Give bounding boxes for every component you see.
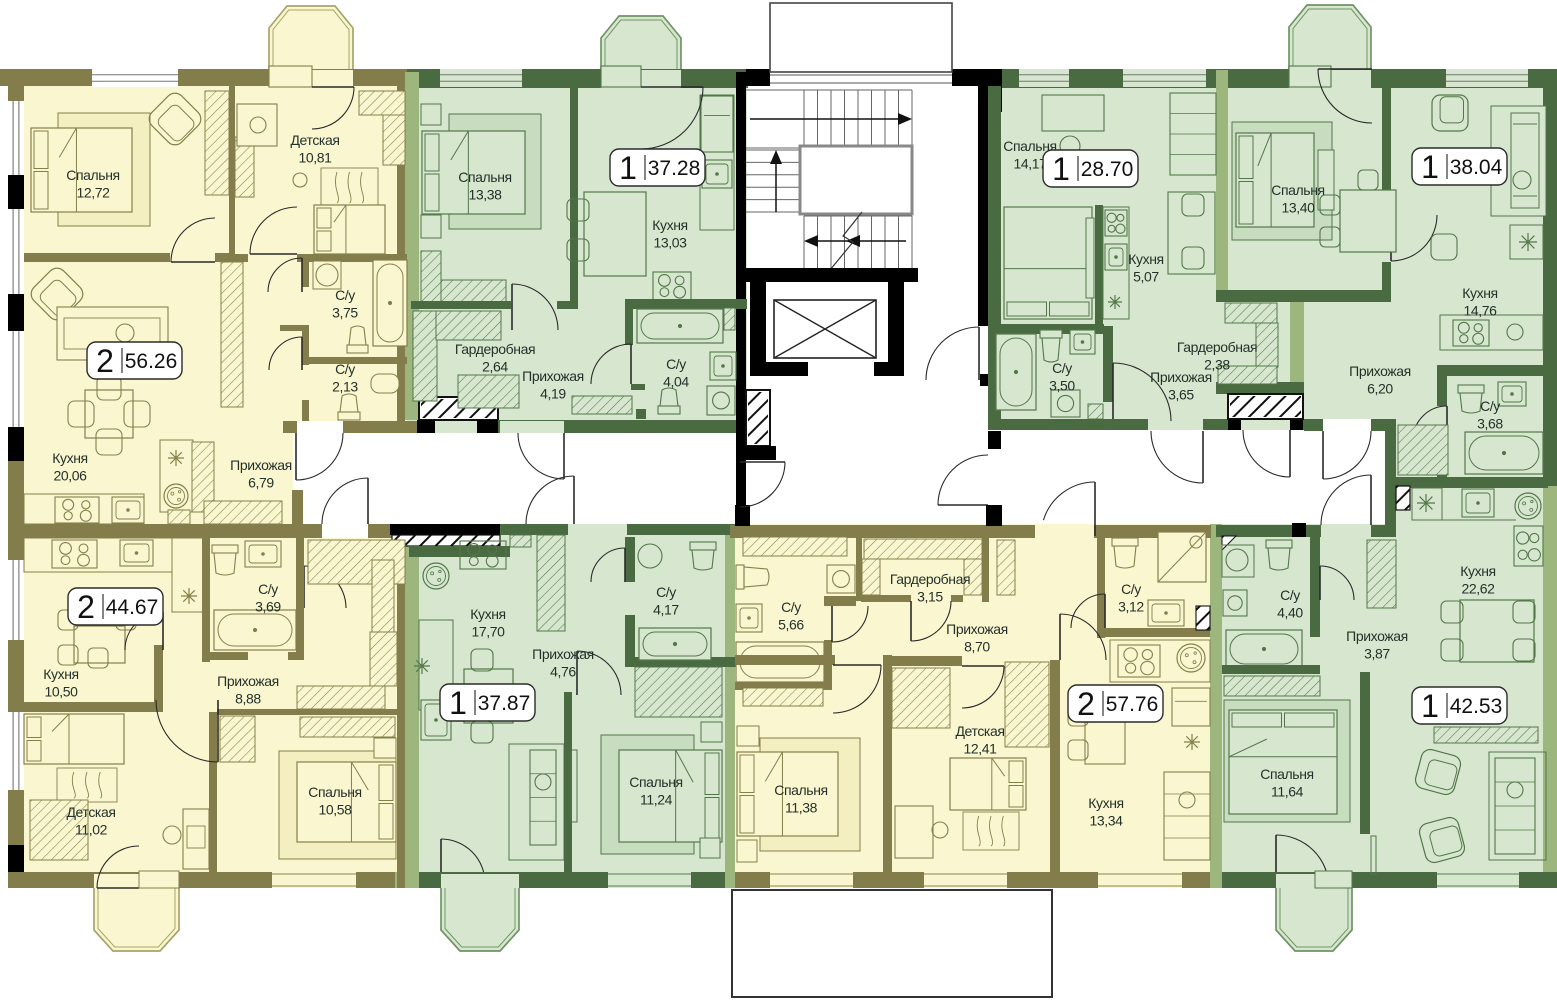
svg-text:С/у3,12: С/у3,12 [1118, 581, 1144, 615]
svg-text:С/у2,13: С/у2,13 [332, 361, 358, 395]
svg-text:37.87: 37.87 [478, 692, 531, 715]
svg-text:2: 2 [96, 343, 114, 379]
svg-text:Кухня10,50: Кухня10,50 [43, 666, 78, 700]
svg-text:Кухня17,70: Кухня17,70 [470, 606, 505, 640]
svg-text:1: 1 [1421, 688, 1439, 724]
svg-text:С/у4,04: С/у4,04 [663, 356, 689, 390]
svg-text:С/у3,50: С/у3,50 [1049, 360, 1075, 394]
svg-text:С/у3,69: С/у3,69 [255, 581, 281, 615]
svg-text:Кухня5,07: Кухня5,07 [1128, 251, 1163, 285]
svg-text:С/у4,17: С/у4,17 [653, 584, 679, 618]
svg-text:1: 1 [449, 685, 467, 721]
svg-text:Кухня14,76: Кухня14,76 [1462, 285, 1497, 319]
svg-text:42.53: 42.53 [1450, 695, 1503, 718]
svg-text:57.76: 57.76 [1106, 693, 1159, 716]
svg-text:1: 1 [1052, 151, 1070, 187]
svg-text:44.67: 44.67 [106, 596, 159, 619]
svg-text:2: 2 [1077, 686, 1095, 722]
svg-text:С/у4,40: С/у4,40 [1277, 587, 1303, 621]
svg-text:Кухня20,06: Кухня20,06 [52, 450, 87, 484]
svg-text:С/у3,75: С/у3,75 [332, 287, 358, 321]
svg-text:1: 1 [619, 150, 637, 186]
svg-text:1: 1 [1421, 149, 1439, 185]
svg-text:2: 2 [77, 589, 95, 625]
svg-text:Кухня13,34: Кухня13,34 [1088, 795, 1123, 829]
svg-text:56.26: 56.26 [125, 350, 178, 373]
svg-text:С/у3,68: С/у3,68 [1477, 398, 1503, 432]
svg-text:Кухня22,62: Кухня22,62 [1460, 563, 1495, 597]
svg-text:37.28: 37.28 [648, 157, 701, 180]
svg-text:С/у5,66: С/у5,66 [778, 599, 804, 633]
svg-text:38.04: 38.04 [1450, 156, 1503, 179]
svg-text:Кухня13,03: Кухня13,03 [652, 217, 687, 251]
svg-text:28.70: 28.70 [1081, 158, 1134, 181]
